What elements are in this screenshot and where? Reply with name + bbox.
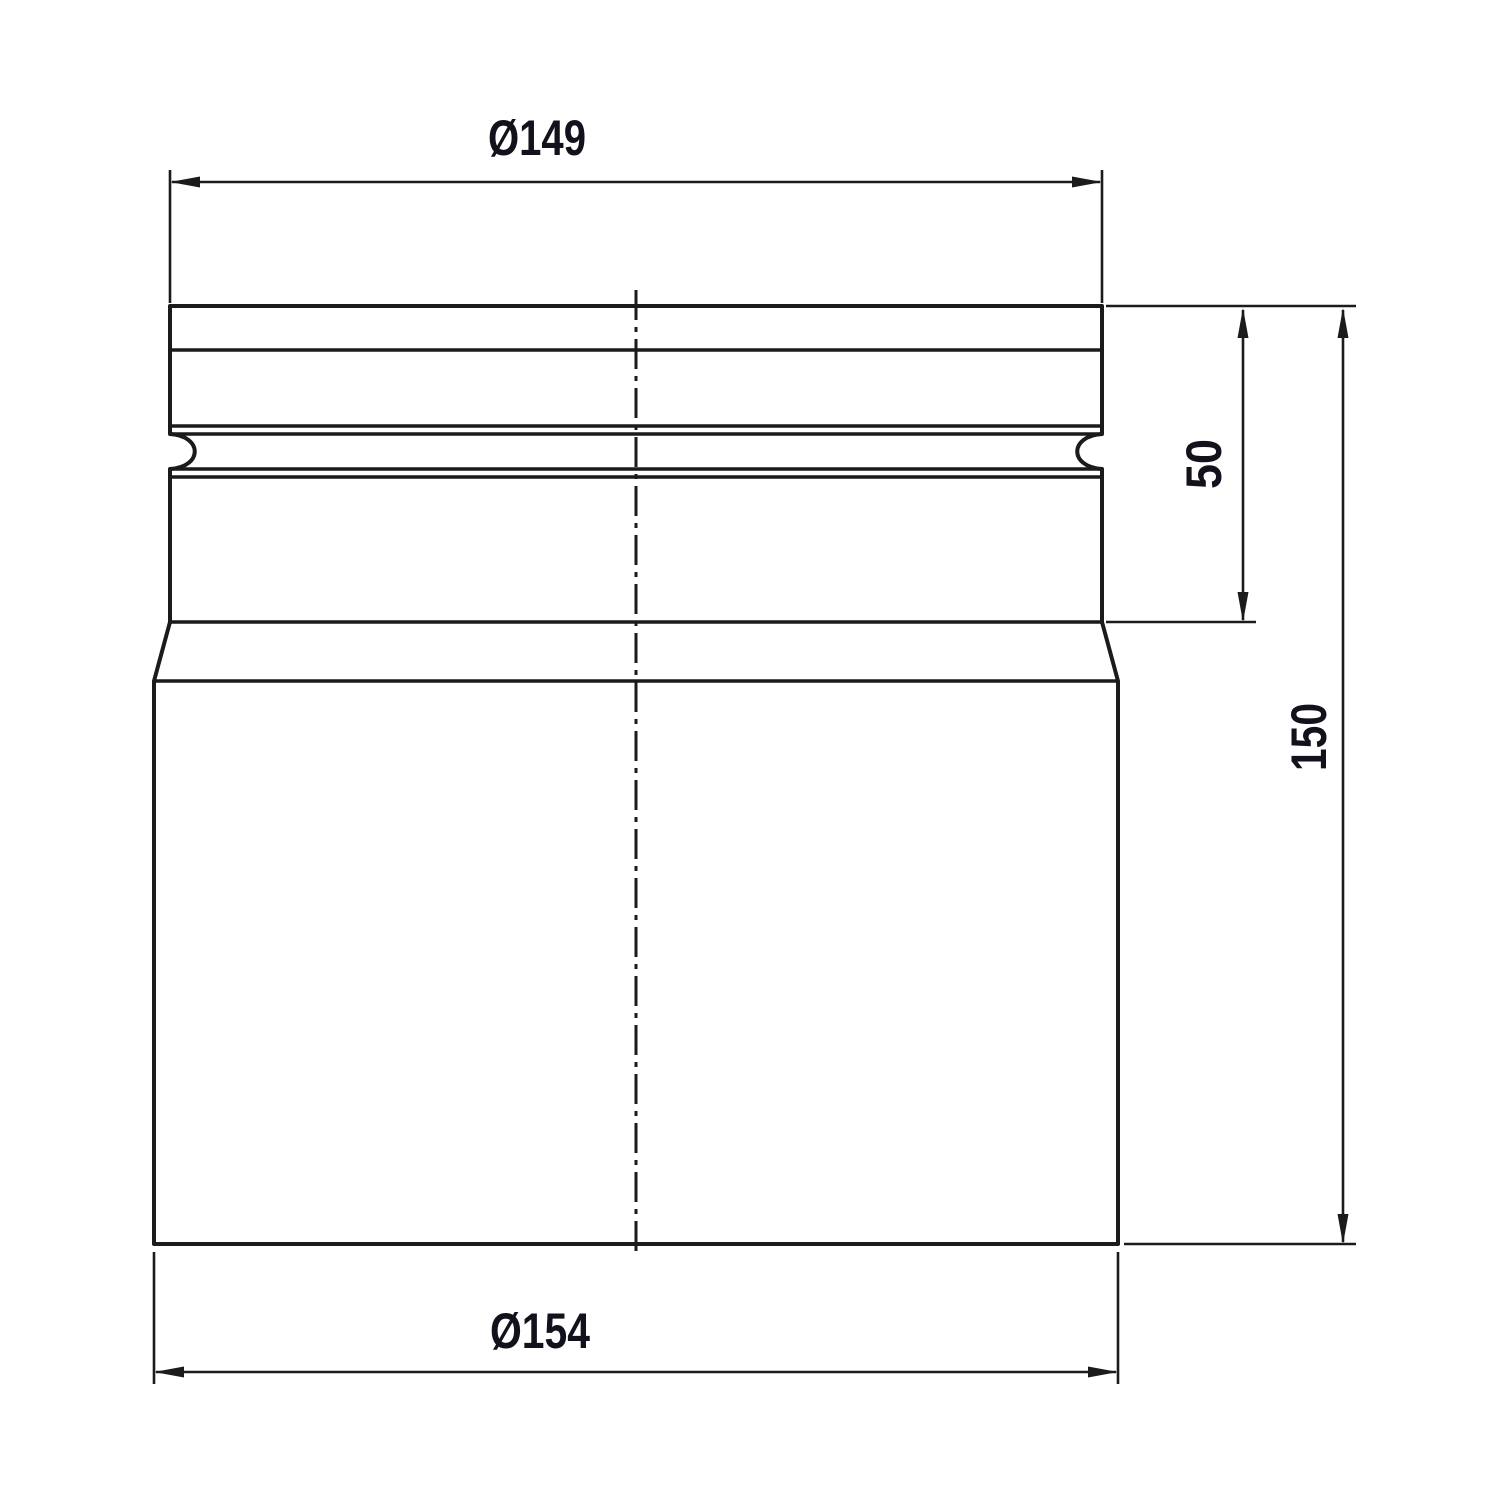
dimension-collar-height: 50: [1106, 306, 1356, 622]
dimension-top-diameter: Ø149: [170, 110, 1102, 303]
dim-label-bottom-diameter: Ø154: [490, 1303, 590, 1359]
arrowhead-down: [1338, 1214, 1349, 1244]
arrowhead-left: [170, 177, 200, 188]
drawing-svg: Ø149 Ø154 50 150: [0, 0, 1500, 1500]
arrowhead-up: [1238, 308, 1249, 338]
dim-label-collar-height: 50: [1176, 439, 1232, 489]
dimension-bottom-diameter: Ø154: [154, 1252, 1118, 1384]
technical-drawing: Ø149 Ø154 50 150: [0, 0, 1500, 1500]
arrowhead-right: [1088, 1367, 1118, 1378]
dimension-overall-height: 150: [1124, 308, 1356, 1244]
arrowhead-down: [1238, 592, 1249, 622]
arrowhead-left: [154, 1367, 184, 1378]
dim-label-top-diameter: Ø149: [488, 110, 586, 166]
arrowhead-right: [1072, 177, 1102, 188]
dim-label-overall-height: 150: [1281, 703, 1337, 771]
arrowhead-up: [1338, 308, 1349, 338]
